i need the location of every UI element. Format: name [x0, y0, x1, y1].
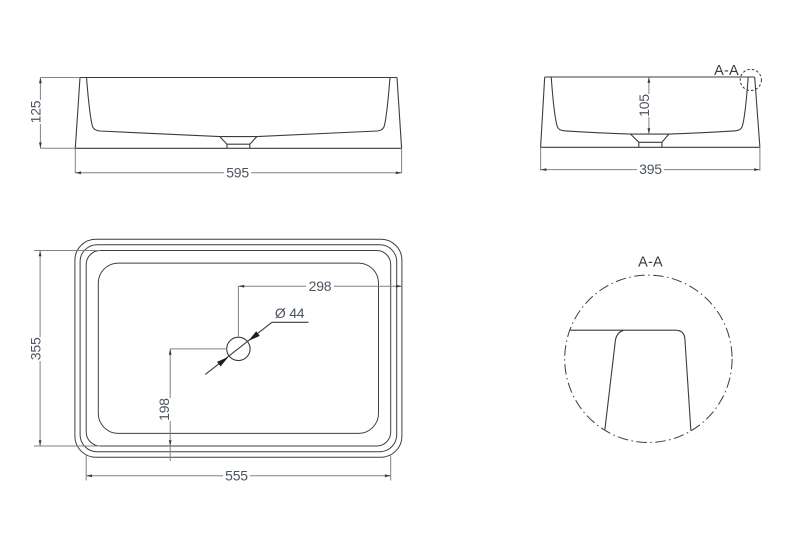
- svg-text:105: 105: [636, 94, 652, 117]
- svg-text:125: 125: [28, 100, 44, 123]
- svg-text:395: 395: [639, 161, 662, 177]
- svg-text:298: 298: [309, 278, 332, 294]
- svg-text:A-A: A-A: [714, 63, 739, 79]
- svg-text:355: 355: [27, 337, 43, 360]
- svg-text:198: 198: [156, 398, 172, 421]
- svg-text:555: 555: [225, 467, 248, 483]
- svg-text:595: 595: [226, 164, 249, 180]
- svg-text:Ø 44: Ø 44: [275, 305, 305, 321]
- svg-text:A-A: A-A: [638, 254, 663, 270]
